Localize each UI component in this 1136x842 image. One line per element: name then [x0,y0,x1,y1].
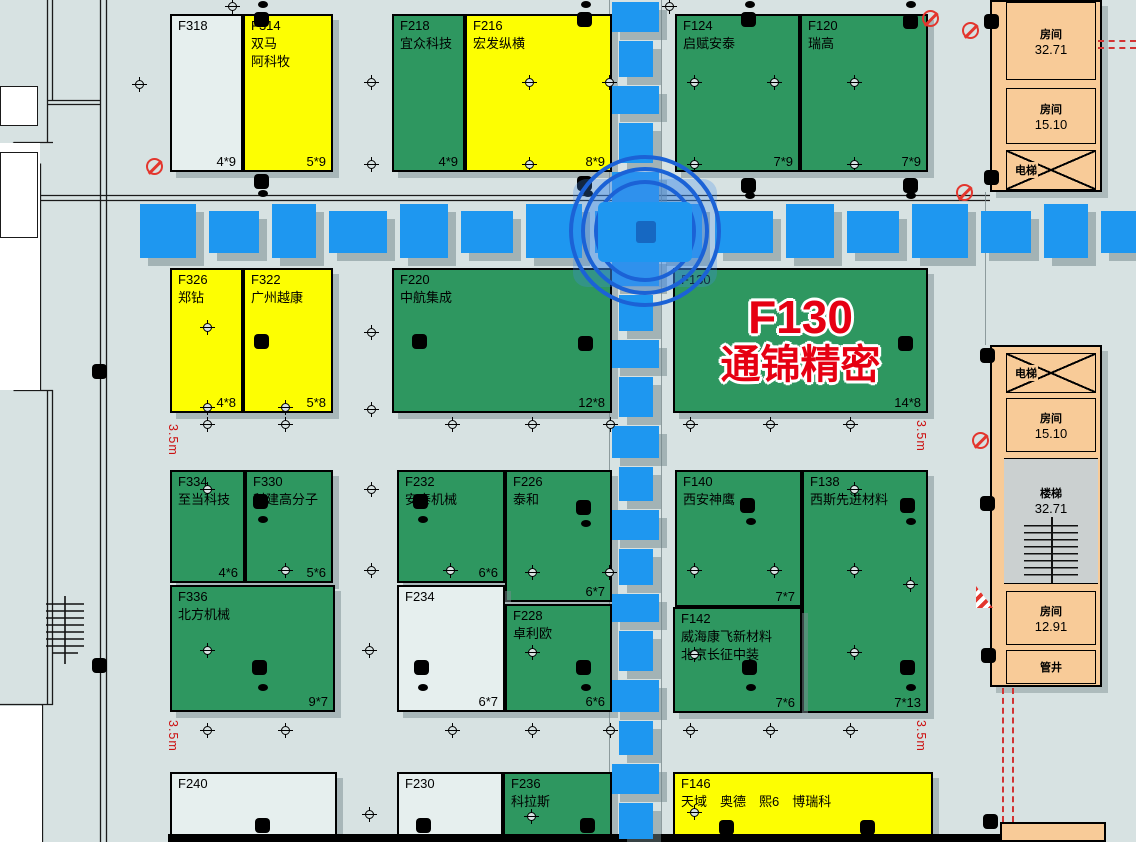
elevator-room[interactable]: 电梯 [1006,353,1096,393]
booth-company-name: 天域 奥德 熙6 博瑞科 [681,793,925,811]
booth-dimensions: 6*6 [478,565,498,580]
column-marker [741,178,756,193]
booth-dimensions: 7*6 [775,695,795,710]
column-marker [742,660,757,675]
booth-dimensions: 4*6 [218,565,238,580]
sprinkler-icon [690,566,699,575]
sprinkler-icon [203,323,212,332]
sprinkler-icon [228,2,237,11]
no-entry-icon [972,432,989,449]
booth-F228[interactable]: F228卓利欧6*6 [505,604,612,712]
column-marker [576,660,591,675]
aisle-carpet-block [209,211,259,253]
sprinkler-icon [846,420,855,429]
booth-id: F226 [513,474,604,491]
column-marker [980,348,995,363]
red-dashed-line [1098,47,1136,49]
column-marker [740,498,755,513]
sprinkler-icon [690,650,699,659]
aisle-carpet-block [912,204,968,258]
booth-F124[interactable]: F124启赋安泰7*9 [675,14,800,172]
aisle-carpet-block [786,204,834,258]
booth-F120[interactable]: F120瑞高7*9 [800,14,928,172]
column-marker [741,12,756,27]
room-label: 房间 [1040,603,1062,619]
booth-dimensions: 5*8 [306,395,326,410]
booth-id: F326 [178,272,235,289]
column-marker [253,494,268,509]
floorplan: F3184*9F314双马阿科牧5*9F218宜众科技4*9F216宏发纵横8*… [0,0,1136,842]
column-dot [906,1,916,8]
booth-id: F330 [253,474,325,491]
booth-F318[interactable]: F3184*9 [170,14,243,172]
sprinkler-icon [203,403,212,412]
aisle-spacing-label: 3.5m [914,420,928,452]
booth-company-name: 郑钻 [178,289,235,307]
stair-room[interactable]: 楼梯32.71 [1004,458,1098,584]
column-marker [900,498,915,513]
sprinkler-icon [605,78,614,87]
booth-id: F146 [681,776,925,793]
sprinkler-icon [906,580,915,589]
column-dot [581,684,591,691]
column-marker [416,818,431,833]
column-marker [903,178,918,193]
column-marker [92,658,107,673]
sprinkler-icon [135,80,144,89]
booth-id: F142 [681,611,794,628]
aisle-spacing-label: 3.5m [166,720,180,752]
room-label: 房间 [1040,101,1062,117]
column-dot [258,684,268,691]
aisle-carpet-block [619,803,653,839]
sprinkler-icon [766,726,775,735]
aisle-carpet-block [619,549,653,585]
aisle-carpet-block [619,41,653,77]
sprinkler-icon [367,485,376,494]
booth-id: F138 [810,474,920,491]
wall-niche [0,152,38,238]
booth-F314[interactable]: F314双马阿科牧5*9 [243,14,333,172]
column-marker [903,14,918,29]
booth-id: F124 [683,18,792,35]
column-marker [898,336,913,351]
booth-F234[interactable]: F2346*7 [397,585,505,712]
service-room[interactable]: 房间32.71 [1006,2,1096,80]
sprinkler-icon [365,810,374,819]
booth-dimensions: 4*9 [438,154,458,169]
column-marker [92,364,107,379]
service-room[interactable]: 管井 [1006,650,1096,684]
room-area: 15.10 [1035,117,1068,132]
bottom-wall [168,834,1014,842]
booth-id: F228 [513,608,604,625]
column-marker [254,12,269,27]
sprinkler-icon [367,328,376,337]
column-marker [984,170,999,185]
booth-F142[interactable]: F142威海康飞新材料北京长征中装7*6 [673,607,802,713]
sprinkler-icon [690,78,699,87]
aisle-carpet-block [140,204,196,258]
sprinkler-icon [367,405,376,414]
aisle-carpet-block [612,340,659,368]
booth-id: F140 [683,474,794,491]
booth-company-name: 瑞高 [808,35,920,53]
booth-company-name: 卓利欧 [513,625,604,643]
booth-company-name: 启赋安泰 [683,35,792,53]
column-dot [746,518,756,525]
sprinkler-icon [665,2,674,11]
booth-F240[interactable]: F240 [170,772,337,842]
sprinkler-icon [850,78,859,87]
column-dot [418,516,428,523]
column-dot [258,1,268,8]
booth-F140[interactable]: F140西安神鹰7*7 [675,470,802,607]
booth-id: F318 [178,18,235,35]
column-marker [719,820,734,835]
aisle-carpet-block [329,211,387,253]
column-marker [412,334,427,349]
booth-company-name: 阿科牧 [251,53,325,71]
sprinkler-icon [605,568,614,577]
booth-id: F240 [178,776,329,793]
sprinkler-icon [528,648,537,657]
sprinkler-icon [367,160,376,169]
aisle-carpet-block [612,680,659,712]
booth-id: F230 [405,776,495,793]
booth-dimensions: 5*9 [306,154,326,169]
sprinkler-icon [528,420,537,429]
column-dot [745,1,755,8]
column-marker [254,334,269,349]
no-entry-icon [962,22,979,39]
booth-F216[interactable]: F216宏发纵横8*9 [465,14,612,172]
column-marker [576,500,591,515]
aisle-spacing-label: 3.5m [914,720,928,752]
aisle-carpet-block [612,2,659,32]
aisle-carpet-block [847,211,899,253]
booth-id: F322 [251,272,325,289]
sprinkler-icon [690,160,699,169]
room-label: 楼梯 [1040,485,1062,501]
booth-F236[interactable]: F236科拉斯 [503,772,612,842]
booth-company-name: 科拉斯 [511,793,604,811]
booth-company-name: 宜众科技 [400,35,457,53]
sprinkler-icon [606,420,615,429]
sprinkler-icon [770,566,779,575]
no-entry-icon [956,184,973,201]
sprinkler-icon [606,726,615,735]
booth-id: F218 [400,18,457,35]
sprinkler-icon [766,420,775,429]
aisle-carpet-block [272,204,316,258]
sprinkler-icon [527,812,536,821]
booth-company-name: 威海康飞新材料 [681,628,794,646]
booth-company-name: 双马 [251,35,325,53]
column-marker [983,814,998,829]
sprinkler-icon [850,485,859,494]
booth-dimensions: 4*9 [216,154,236,169]
no-entry-icon [146,158,163,175]
booth-dimensions: 7*13 [894,695,921,710]
sprinkler-icon [203,485,212,494]
booth-F226[interactable]: F226泰和6*7 [505,470,612,602]
sprinkler-icon [850,160,859,169]
sprinkler-icon [525,160,534,169]
column-marker [900,660,915,675]
booth-dimensions: 9*7 [308,694,328,709]
aisle-carpet-block [619,467,653,501]
aisle-carpet-block [461,211,513,253]
room-label: 电梯 [1014,365,1038,381]
column-marker [980,496,995,511]
red-dashed-line [1002,688,1004,822]
room-area: 32.71 [1035,42,1068,57]
column-dot [258,190,268,197]
column-dot [418,684,428,691]
booth-id: F336 [178,589,327,606]
wall-niche [0,86,38,126]
aisle-carpet-block [612,594,659,622]
sprinkler-icon [203,726,212,735]
sprinkler-icon [365,646,374,655]
column-marker [578,336,593,351]
column-marker [984,14,999,29]
sprinkler-icon [281,403,290,412]
aisle-carpet-block [715,211,773,253]
aisle-carpet-block [612,510,659,540]
outside-area [0,706,42,842]
highlighted-booth-label: F130通锦精密 [675,270,926,411]
room-label: 电梯 [1014,162,1038,178]
sprinkler-icon [525,78,534,87]
room-area: 32.71 [1035,501,1068,516]
sprinkler-icon [448,420,457,429]
sprinkler-icon [850,566,859,575]
column-marker [255,818,270,833]
aisle-carpet-block [612,86,659,114]
sprinkler-icon [367,566,376,575]
booth-dimensions: 6*6 [585,694,605,709]
ladder-icon [40,594,90,666]
sprinkler-icon [203,420,212,429]
room-area: 15.10 [1035,426,1068,441]
room-label: 房间 [1040,410,1062,426]
column-marker [413,494,428,509]
aisle-carpet-block [981,211,1031,253]
booth-company-name: 北方机械 [178,606,327,624]
sprinkler-icon [770,78,779,87]
service-room[interactable]: 房间15.10 [1006,88,1096,144]
column-dot [906,684,916,691]
aisle-carpet-block [1101,211,1136,253]
booth-dimensions: 7*9 [773,154,793,169]
aisle-carpet-block [619,631,653,671]
highlight-text-line: 通锦精密 [721,343,881,387]
sprinkler-icon [690,808,699,817]
column-marker [414,660,429,675]
booth-dimensions: 5*6 [306,565,326,580]
column-dot [258,516,268,523]
aisle-carpet-block [619,377,653,417]
booth-dimensions: 7*9 [901,154,921,169]
target-core-dot [636,221,656,243]
sprinkler-icon [281,566,290,575]
sprinkler-icon [203,646,212,655]
booth-company-name: 西安神鹰 [683,491,794,509]
sprinkler-icon [281,420,290,429]
booth-dimensions: 6*7 [585,584,605,599]
sprinkler-icon [367,78,376,87]
column-marker [981,648,996,663]
booth-company-name: 宏发纵横 [473,35,604,53]
booth-company-name: 广州越康 [251,289,325,307]
booth-id: F236 [511,776,604,793]
sprinkler-icon [448,726,457,735]
red-dashed-line [1012,688,1014,822]
booth-F230[interactable]: F230 [397,772,503,842]
sprinkler-icon [281,726,290,735]
aisle-carpet-block [400,204,448,258]
service-room[interactable]: 房间15.10 [1006,398,1096,452]
booth-dimensions: 12*8 [578,395,605,410]
sprinkler-icon [528,568,537,577]
column-marker [860,820,875,835]
stairs-icon [1024,525,1078,577]
booth-dimensions: 6*7 [478,694,498,709]
booth-F218[interactable]: F218宜众科技4*9 [392,14,465,172]
column-dot [581,520,591,527]
column-marker [580,818,595,833]
sprinkler-icon [528,726,537,735]
booth-id: F232 [405,474,497,491]
elevator-room[interactable]: 电梯 [1006,150,1096,190]
booth-F146[interactable]: F146天域 奥德 熙6 博瑞科 [673,772,933,842]
room-label: 管井 [1040,659,1062,675]
column-dot [906,518,916,525]
sprinkler-icon [850,648,859,657]
booth-dimensions: 4*8 [216,395,236,410]
booth-F336[interactable]: F336北方机械9*7 [170,585,335,712]
sprinkler-icon [686,726,695,735]
highlight-text-line: F130 [748,291,853,343]
aisle-carpet-block [619,721,653,755]
room-area: 12.91 [1035,619,1068,634]
service-room-partial [1000,822,1106,842]
column-marker [254,174,269,189]
no-entry-icon [922,10,939,27]
column-dot [906,192,916,199]
booth-F130[interactable]: F13014*8F130通锦精密 [673,268,928,413]
booth-id: F234 [405,589,497,606]
column-dot [746,684,756,691]
booth-dimensions: 7*7 [775,589,795,604]
aisle-carpet-block [612,764,659,794]
column-dot [581,1,591,8]
room-label: 房间 [1040,26,1062,42]
column-dot [745,192,755,199]
booth-F326[interactable]: F326郑钻4*8 [170,268,243,413]
sprinkler-icon [846,726,855,735]
column-marker [577,12,592,27]
aisle-spacing-label: 3.5m [166,424,180,456]
service-room[interactable]: 房间12.91 [1006,591,1096,645]
sprinkler-icon [686,420,695,429]
sprinkler-icon [446,566,455,575]
aisle-carpet-block [1044,204,1088,258]
booth-company-name: 中航集成 [400,289,604,307]
aisle-carpet-block [612,426,659,458]
red-dashed-line [1098,40,1136,42]
column-marker [252,660,267,675]
